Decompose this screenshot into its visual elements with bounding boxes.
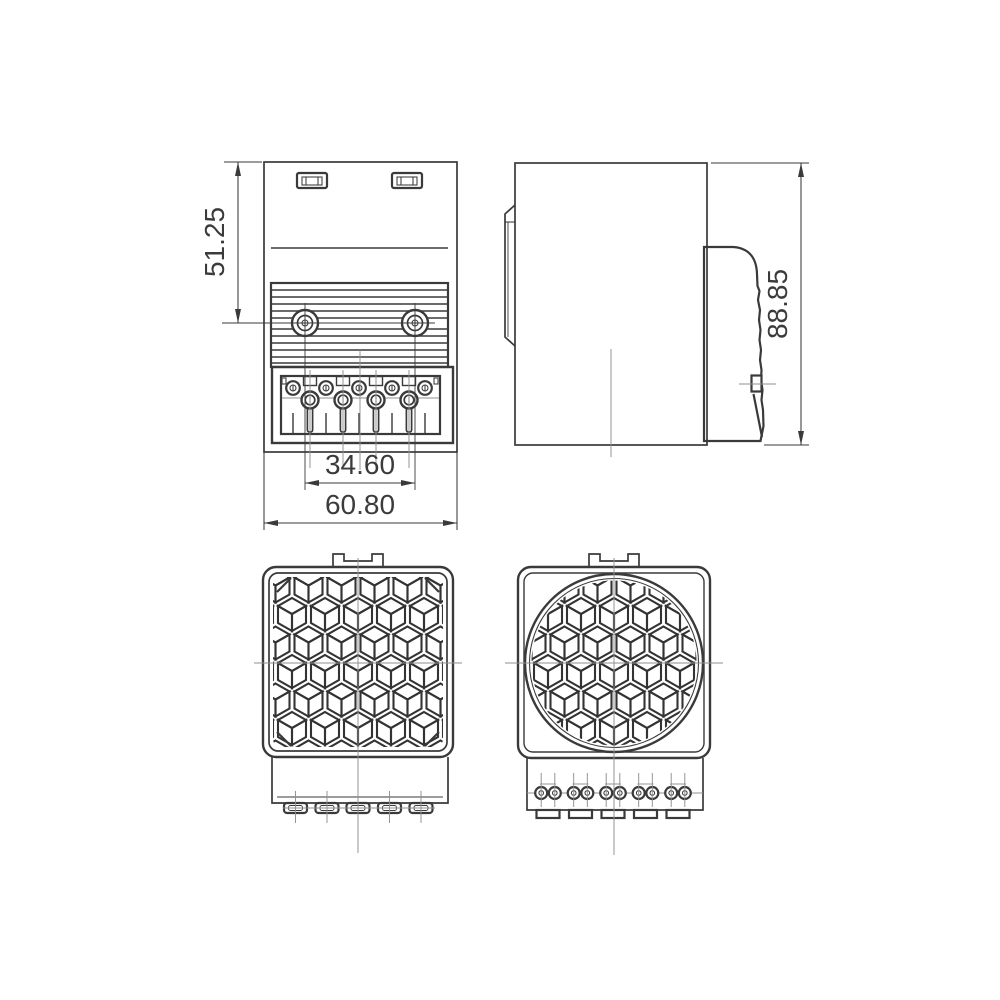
cube-grille-pattern-round bbox=[468, 541, 777, 802]
grille-bottom-view bbox=[468, 541, 777, 855]
grille-front-view bbox=[212, 541, 521, 853]
dimension-overall-width: 60.80 bbox=[264, 489, 457, 526]
technical-drawing: 51.25 34.60 60.80 88.85 bbox=[0, 0, 1000, 1000]
dimension-overall-height: 88.85 bbox=[711, 163, 809, 445]
bottom-terminal-screws bbox=[535, 773, 691, 818]
front-body-outline bbox=[264, 162, 457, 452]
side-view bbox=[505, 163, 776, 457]
dimension-upper-height: 51.25 bbox=[199, 162, 241, 323]
terminal-block bbox=[272, 367, 453, 443]
side-left-tab bbox=[505, 205, 515, 346]
dim-label-34-60: 34.60 bbox=[325, 449, 395, 480]
clip-slot-right bbox=[392, 173, 422, 188]
dim-label-51-25: 51.25 bbox=[199, 207, 230, 277]
dim-label-60-80: 60.80 bbox=[325, 489, 395, 520]
cube-grille-pattern-front bbox=[212, 541, 521, 802]
clip-slot-left bbox=[297, 173, 327, 188]
grille-lower-body bbox=[272, 757, 448, 803]
drawing-canvas: 51.25 34.60 60.80 88.85 bbox=[0, 0, 1000, 1000]
clip-latch bbox=[752, 376, 762, 392]
dim-label-88-85: 88.85 bbox=[762, 269, 793, 339]
dimension-screw-spacing: 34.60 bbox=[305, 449, 415, 486]
